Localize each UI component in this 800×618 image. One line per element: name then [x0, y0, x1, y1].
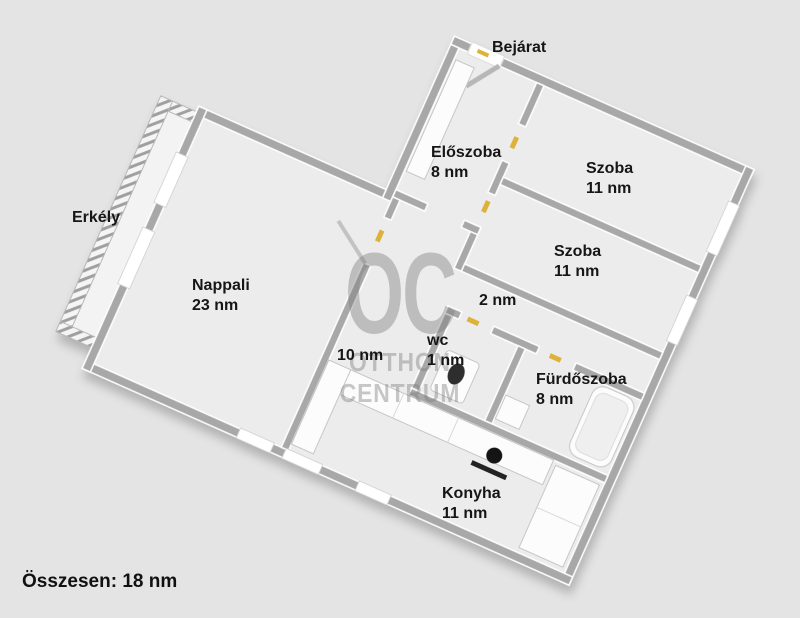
room-label-wc: wc 1 nm — [427, 331, 464, 371]
building — [46, 0, 756, 587]
room-label-kozlekedo-nagy: 10 nm — [337, 346, 383, 366]
room-label-nappali: Nappali 23 nm — [192, 276, 250, 316]
room-area: 11 nm — [586, 179, 633, 199]
room-area: 8 nm — [536, 390, 627, 410]
room-label-furdoszoba: Fürdőszoba 8 nm — [536, 370, 627, 410]
room-name: wc — [427, 331, 464, 351]
room-name: Szoba — [554, 242, 601, 262]
total-area-label: Összesen: 18 nm — [22, 571, 177, 593]
label-balcony: Erkély — [72, 208, 120, 228]
room-area: 23 nm — [192, 296, 250, 316]
room-label-eloszoba: Előszoba 8 nm — [431, 143, 501, 183]
room-area: 2 nm — [479, 291, 516, 311]
room-label-szoba-also: Szoba 11 nm — [554, 242, 601, 282]
label-entrance: Bejárat — [492, 38, 546, 58]
room-name: Fürdőszoba — [536, 370, 627, 390]
room-area: 10 nm — [337, 346, 383, 366]
room-label-szoba-felso: Szoba 11 nm — [586, 159, 633, 199]
room-name: Szoba — [586, 159, 633, 179]
room-label-konyha: Konyha 11 nm — [442, 484, 501, 524]
floor-plan-page: OC OTTHON CENTRUM Bejárat Erkély Nappali… — [0, 0, 800, 618]
room-area: 11 nm — [554, 262, 601, 282]
room-name: Nappali — [192, 276, 250, 296]
room-label-kozlekedo-kis: 2 nm — [479, 291, 516, 311]
room-name: Konyha — [442, 484, 501, 504]
floor-plan-drawing — [0, 0, 800, 618]
room-area: 1 nm — [427, 351, 464, 371]
floors — [62, 0, 742, 573]
room-area: 8 nm — [431, 163, 501, 183]
room-name: Előszoba — [431, 143, 501, 163]
room-area: 11 nm — [442, 504, 501, 524]
